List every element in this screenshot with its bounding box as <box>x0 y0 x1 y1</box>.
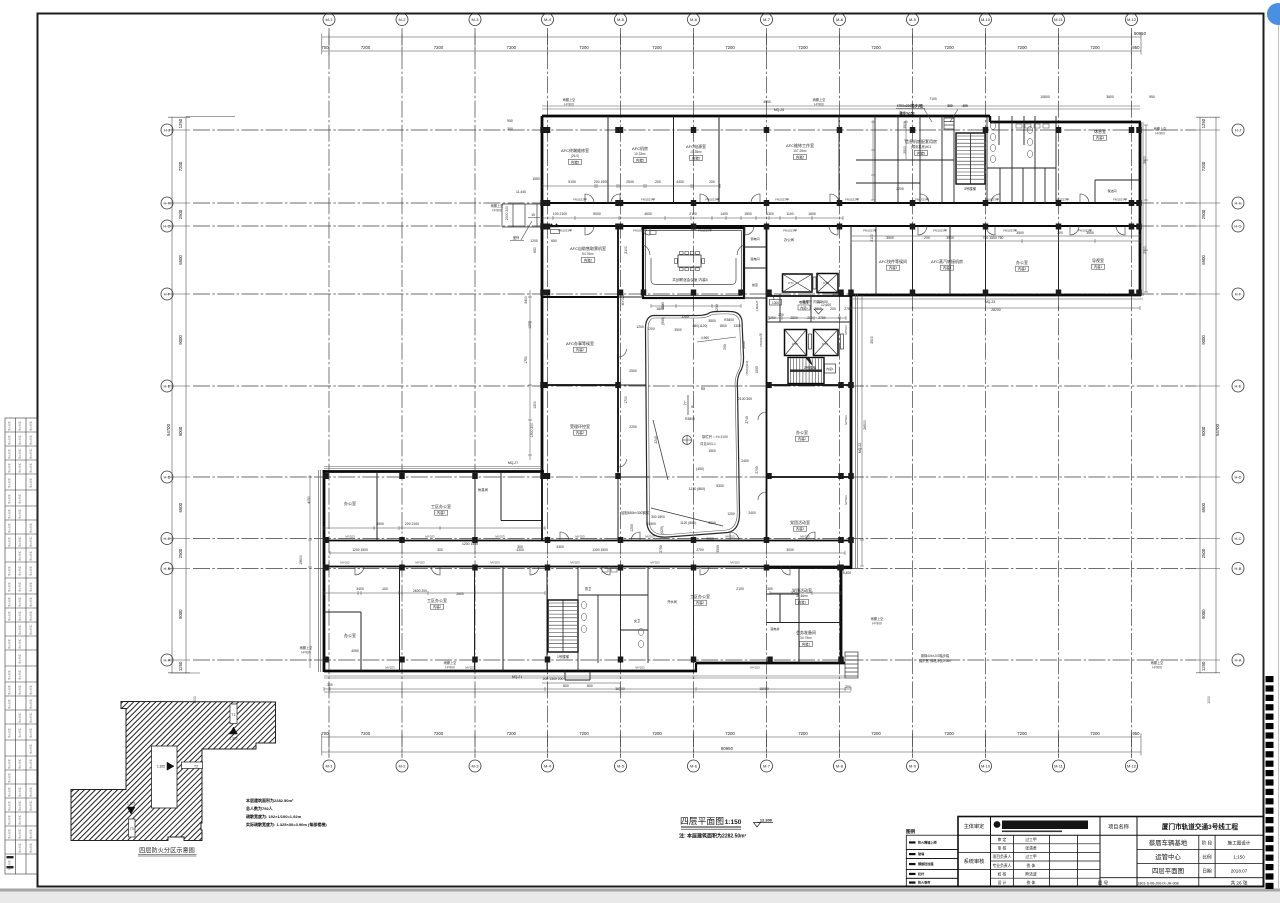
svg-text:防火分区: 防火分区 <box>7 815 11 825</box>
svg-text:54700: 54700 <box>166 423 171 436</box>
svg-text:H-F: H-F <box>1235 292 1242 297</box>
svg-text:内装2: 内装2 <box>584 257 592 262</box>
svg-text:200: 200 <box>709 180 715 184</box>
svg-text:5300: 5300 <box>708 521 716 525</box>
svg-text:FM1023甲: FM1023甲 <box>759 333 763 346</box>
svg-text:MY023: MY023 <box>844 325 848 335</box>
svg-text:防火分区: 防火分区 <box>7 435 11 445</box>
svg-text:MY023: MY023 <box>495 535 505 539</box>
svg-text:750 1500 750: 750 1500 750 <box>983 236 1004 240</box>
svg-text:FM1523甲: FM1523甲 <box>573 198 587 202</box>
svg-text:2100 300: 2100 300 <box>738 397 752 401</box>
svg-text:M-7: M-7 <box>763 764 771 769</box>
svg-text:2600: 2600 <box>456 592 464 596</box>
svg-text:2号楼梯: 2号楼梯 <box>804 365 817 370</box>
svg-text:注: 本层建筑面积为2282.50m²: 注: 本层建筑面积为2282.50m² <box>679 832 747 839</box>
svg-text:M-6: M-6 <box>690 764 698 769</box>
svg-text:1600: 1600 <box>808 212 816 216</box>
svg-text:内装1: 内装1 <box>826 367 834 371</box>
svg-text:四层平面图: 四层平面图 <box>1152 867 1184 875</box>
svg-text:1300 1500: 1300 1500 <box>592 548 608 552</box>
svg-text:H-G: H-G <box>1234 224 1241 229</box>
svg-text:防火分区: 防火分区 <box>29 551 33 561</box>
svg-text:图例: 图例 <box>906 828 916 835</box>
svg-text:200: 200 <box>924 236 930 240</box>
svg-text:2100: 2100 <box>689 212 697 216</box>
svg-text:防火分区: 防火分区 <box>7 597 11 607</box>
svg-text:FM1023甲: FM1023甲 <box>698 229 712 233</box>
svg-text:H=900: H=900 <box>492 209 502 213</box>
svg-text:踏步宽, 梯段净宽5,650: 踏步宽, 梯段净宽5,650 <box>919 658 951 663</box>
svg-text:AFC蒸汽转接机房: AFC蒸汽转接机房 <box>931 258 963 264</box>
svg-text:防火分区: 防火分区 <box>18 611 22 621</box>
svg-text:9000: 9000 <box>178 335 183 345</box>
svg-text:1号楼梯: 1号楼梯 <box>557 654 570 659</box>
svg-text:FM1023甲: FM1023甲 <box>1003 229 1017 233</box>
svg-text:防火分区: 防火分区 <box>7 421 11 431</box>
svg-text:200 1900: 200 1900 <box>594 180 608 184</box>
svg-text:2750: 2750 <box>844 307 852 311</box>
svg-text:2240: 2240 <box>654 436 658 444</box>
svg-text:施工图设计: 施工图设计 <box>1228 840 1251 847</box>
svg-text:100 2100: 100 2100 <box>553 212 567 216</box>
svg-text:2300 200: 2300 200 <box>505 206 509 220</box>
svg-text:FM1023甲: FM1023甲 <box>863 229 877 233</box>
svg-text:4600: 4600 <box>644 212 652 216</box>
svg-text:踏步%150: 踏步%150 <box>899 111 914 116</box>
svg-text:雨棚上空: 雨棚上空 <box>563 97 576 102</box>
svg-text:内装5: 内装5 <box>571 159 579 164</box>
svg-text:2500: 2500 <box>178 209 183 219</box>
svg-text:MY023: MY023 <box>415 561 425 565</box>
svg-text:4700x200踏步(暗): 4700x200踏步(暗) <box>897 103 924 108</box>
svg-text:实际疏散宽度为: 1.325×30=3.90m (每部楼梯): 实际疏散宽度为: 1.325×30=3.90m (每部楼梯) <box>246 821 327 827</box>
svg-text:防火分区: 防火分区 <box>29 463 33 473</box>
svg-text:(950): (950) <box>661 317 665 325</box>
svg-text:雨棚上空: 雨棚上空 <box>813 97 826 102</box>
svg-text:1500: 1500 <box>755 366 759 374</box>
svg-text:26500: 26500 <box>863 420 867 430</box>
svg-text:2500: 2500 <box>178 548 183 558</box>
svg-text:钢梯40b×200踏步踏: 钢梯40b×200踏步踏 <box>921 653 950 658</box>
svg-text:内装2: 内装2 <box>798 436 806 441</box>
svg-text:男卫: 男卫 <box>585 586 592 591</box>
svg-text:强电井: 强电井 <box>770 626 779 631</box>
svg-text:阶 段: 阶 段 <box>1202 840 1213 847</box>
svg-text:(450): (450) <box>696 467 704 471</box>
svg-text:H-J: H-J <box>1235 128 1241 133</box>
svg-text:1200: 1200 <box>630 524 634 532</box>
svg-text:2500: 2500 <box>1201 548 1206 558</box>
svg-text:650: 650 <box>551 239 557 243</box>
svg-text:7200: 7200 <box>434 731 444 736</box>
svg-text:办公室: 办公室 <box>1016 259 1028 265</box>
svg-text:办公室: 办公室 <box>344 500 356 506</box>
svg-text:1400: 1400 <box>720 212 728 216</box>
svg-text:300: 300 <box>507 127 513 131</box>
svg-text:MQ-21: MQ-21 <box>512 675 522 679</box>
svg-text:防火分区: 防火分区 <box>7 728 11 738</box>
svg-text:7200: 7200 <box>361 731 371 736</box>
svg-text:700: 700 <box>321 45 329 50</box>
svg-text:M-3: M-3 <box>472 764 480 769</box>
svg-text:防火分区: 防火分区 <box>29 829 33 839</box>
svg-text:M-7: M-7 <box>763 17 771 22</box>
svg-text:防火分区: 防火分区 <box>7 494 11 504</box>
svg-text:会务准备间: 会务准备间 <box>796 629 816 635</box>
svg-text:AFC办事等候室: AFC办事等候室 <box>566 340 594 346</box>
svg-text:办公室: 办公室 <box>344 632 356 638</box>
svg-text:AFC机房: AFC机房 <box>632 145 648 151</box>
svg-text:FM1523甲: FM1523甲 <box>845 198 859 202</box>
svg-text:1200: 1200 <box>727 512 735 516</box>
svg-text:3500: 3500 <box>870 336 874 344</box>
svg-text:1250: 1250 <box>178 118 183 128</box>
svg-text:7200: 7200 <box>871 45 881 50</box>
svg-text:680(1120): 680(1120) <box>693 324 708 328</box>
svg-text:DT1: DT1 <box>788 281 794 285</box>
svg-text:1550: 1550 <box>532 177 540 181</box>
svg-text:3600: 3600 <box>1106 95 1114 99</box>
svg-text:34.75m²: 34.75m² <box>800 636 812 640</box>
svg-text:7200: 7200 <box>725 45 735 50</box>
svg-text:防火分区: 防火分区 <box>29 843 33 853</box>
svg-text:7200: 7200 <box>506 731 516 736</box>
svg-text:防火分区: 防火分区 <box>7 829 11 839</box>
svg-text:6500: 6500 <box>1201 502 1206 512</box>
svg-text:2500: 2500 <box>742 341 746 349</box>
svg-text:2600 200: 2600 200 <box>413 589 427 593</box>
svg-text:防火分区: 防火分区 <box>18 566 22 576</box>
svg-text:项目负责人: 项目负责人 <box>993 854 1012 859</box>
svg-text:6500: 6500 <box>178 255 183 265</box>
svg-text:MY023: MY023 <box>725 535 735 539</box>
svg-text:防火分区: 防火分区 <box>18 759 22 769</box>
svg-text:80950: 80950 <box>721 746 734 751</box>
svg-text:7200: 7200 <box>798 731 808 736</box>
svg-text:MY023: MY023 <box>340 561 350 565</box>
svg-text:1.325: 1.325 <box>157 765 165 769</box>
svg-text:15,400: 15,400 <box>841 571 851 575</box>
svg-text:工区办公室: 工区办公室 <box>690 593 710 599</box>
svg-text:7200: 7200 <box>579 45 589 50</box>
svg-text:防火分区: 防火分区 <box>7 773 11 783</box>
svg-text:运管中心: 运管中心 <box>1155 852 1181 861</box>
svg-text:(1500)(900): (1500)(900) <box>745 361 749 376</box>
svg-text:1130 (860): 1130 (860) <box>689 487 705 491</box>
svg-text:28200: 28200 <box>991 308 1001 312</box>
svg-text:防火分区: 防火分区 <box>29 478 33 488</box>
svg-text:防火分区: 防火分区 <box>18 625 22 635</box>
svg-text:1300: 1300 <box>766 212 774 216</box>
svg-text:主体审定: 主体审定 <box>964 822 985 830</box>
svg-text:7200: 7200 <box>1090 731 1100 736</box>
svg-text:80950: 80950 <box>1134 31 1147 36</box>
svg-text:内装2: 内装2 <box>433 604 441 609</box>
svg-text:19600: 19600 <box>299 555 303 565</box>
svg-text:AFC终端维修室: AFC终端维修室 <box>561 147 589 153</box>
svg-text:R3500: R3500 <box>646 522 656 526</box>
svg-text:H-E: H-E <box>1235 384 1242 389</box>
svg-text:防火卷帘: 防火卷帘 <box>918 880 930 885</box>
svg-text:2400: 2400 <box>748 511 756 515</box>
svg-text:3500: 3500 <box>708 319 716 323</box>
svg-text:H=900: H=900 <box>564 103 574 107</box>
svg-text:休息间: 休息间 <box>478 487 489 492</box>
svg-text:FM1023甲: FM1023甲 <box>933 229 947 233</box>
svg-text:弱电间: 弱电间 <box>750 236 759 241</box>
svg-text:防火分区: 防火分区 <box>29 699 33 709</box>
svg-text:厦门市轨道交通3号线工程: 厦门市轨道交通3号线工程 <box>1161 822 1239 831</box>
svg-text:AFC维修工作室: AFC维修工作室 <box>786 142 814 148</box>
svg-text:内装3: 内装3 <box>943 265 951 270</box>
svg-text:7200: 7200 <box>506 45 516 50</box>
svg-text:防火分区: 防火分区 <box>29 744 33 754</box>
svg-text:7100: 7100 <box>929 97 937 101</box>
svg-text:防火分区: 防火分区 <box>29 801 33 811</box>
svg-text:DT3: DT3 <box>792 342 798 346</box>
svg-text:3500: 3500 <box>674 328 682 332</box>
svg-text:防火分区: 防火分区 <box>29 787 33 797</box>
svg-text:7200: 7200 <box>1090 45 1100 50</box>
svg-text:H-C: H-C <box>1234 536 1241 541</box>
svg-text:M-2: M-2 <box>399 17 407 22</box>
svg-text:H-B: H-B <box>1235 566 1242 571</box>
svg-text:防火分区: 防火分区 <box>7 639 11 649</box>
svg-text:2100: 2100 <box>870 234 874 242</box>
svg-text:防火分区: 防火分区 <box>7 566 11 576</box>
svg-text:防火分区: 防火分区 <box>18 843 22 853</box>
svg-text:栏杆: 栏杆 <box>918 871 925 876</box>
svg-text:R3800: R3800 <box>685 417 695 421</box>
svg-text:F,M2427: F,M2427 <box>755 300 759 311</box>
svg-text:15: 15 <box>531 213 535 217</box>
svg-text:M-6: M-6 <box>690 17 698 22</box>
svg-text:200: 200 <box>1057 231 1063 235</box>
svg-text:MY023: MY023 <box>635 666 645 670</box>
svg-text:R8: R8 <box>701 387 705 391</box>
svg-text:M-4: M-4 <box>544 17 552 22</box>
svg-text:1000: 1000 <box>1207 696 1211 704</box>
svg-text:9000: 9000 <box>1201 609 1206 619</box>
svg-text:M-8: M-8 <box>836 17 844 22</box>
svg-text:M-5: M-5 <box>617 17 625 22</box>
svg-text:内装1: 内装1 <box>798 599 806 604</box>
svg-text:10.35m²: 10.35m² <box>690 150 702 154</box>
svg-text:内装3: 内装3 <box>1096 135 1104 140</box>
svg-text:54.76m²: 54.76m² <box>582 252 594 256</box>
svg-text:雨棚上空: 雨棚上空 <box>1151 660 1164 665</box>
svg-text:2740: 2740 <box>745 416 749 424</box>
svg-text:防火分区: 防火分区 <box>18 537 22 547</box>
svg-text:FM1523甲: FM1523甲 <box>915 198 929 202</box>
svg-text:650: 650 <box>533 247 537 253</box>
svg-text:M-3: M-3 <box>472 17 480 22</box>
svg-text:H=900: H=900 <box>872 622 882 626</box>
svg-text:防火分区: 防火分区 <box>29 566 33 576</box>
svg-text:2500: 2500 <box>626 180 634 184</box>
svg-text:2500: 2500 <box>629 369 637 373</box>
svg-text:防火分区: 防火分区 <box>7 449 11 459</box>
svg-text:防火分区: 防火分区 <box>7 699 11 709</box>
svg-text:FM1523甲: FM1523甲 <box>775 198 789 202</box>
svg-text:MY023: MY023 <box>650 561 660 565</box>
svg-text:3400: 3400 <box>524 296 528 304</box>
svg-text:审 核: 审 核 <box>998 846 1007 851</box>
svg-text:T3: T3 <box>130 827 134 831</box>
svg-text:M-12: M-12 <box>1127 17 1137 22</box>
svg-text:4050: 4050 <box>307 496 311 504</box>
svg-text:3500: 3500 <box>1016 231 1024 235</box>
svg-text:防火分区: 防火分区 <box>7 523 11 533</box>
svg-text:蔡厝车辆基地: 蔡厝车辆基地 <box>1149 838 1188 847</box>
svg-text:5300: 5300 <box>716 484 724 488</box>
svg-text:内装3: 内装3 <box>889 265 897 270</box>
svg-text:M-4: M-4 <box>544 764 552 769</box>
svg-text:R3800: R3800 <box>724 318 734 322</box>
svg-text:7200: 7200 <box>1017 45 1027 50</box>
svg-text:4050: 4050 <box>351 649 359 653</box>
svg-text:防火分区: 防火分区 <box>18 421 22 431</box>
svg-text:雨棚上空: 雨棚上空 <box>1154 126 1167 131</box>
svg-text:MY023: MY023 <box>465 666 475 670</box>
svg-text:1250: 1250 <box>1201 661 1206 671</box>
svg-text:2200: 2200 <box>896 187 904 191</box>
svg-text:MY023: MY023 <box>490 561 500 565</box>
svg-text:200: 200 <box>723 344 727 350</box>
svg-text:FM1023甲: FM1023甲 <box>1078 229 1092 233</box>
svg-text:张清君: 张清君 <box>1025 846 1037 851</box>
svg-text:950: 950 <box>1149 95 1155 99</box>
svg-text:本层建筑面积为2282.50m²: 本层建筑面积为2282.50m² <box>245 797 294 803</box>
svg-text:700: 700 <box>321 731 329 736</box>
svg-text:佚 体: 佚 体 <box>1027 880 1036 885</box>
svg-text:1200: 1200 <box>715 304 719 312</box>
svg-text:防火分区: 防火分区 <box>7 787 11 797</box>
svg-text:FM1523甲: FM1523甲 <box>705 198 719 202</box>
svg-text:防火分区: 防火分区 <box>29 597 33 607</box>
svg-text:7200: 7200 <box>579 731 589 736</box>
svg-text:MY023: MY023 <box>425 535 435 539</box>
svg-text:玻璃: 玻璃 <box>918 851 924 856</box>
svg-text:7200: 7200 <box>871 731 881 736</box>
svg-text:T2: T2 <box>194 764 198 768</box>
svg-text:强电间: 强电间 <box>750 256 759 261</box>
svg-text:MQ-25: MQ-25 <box>774 108 784 112</box>
svg-text:M-9: M-9 <box>909 764 917 769</box>
svg-text:防火分区: 防火分区 <box>29 625 33 635</box>
svg-text:防火分区: 防火分区 <box>7 759 11 769</box>
svg-text:39.66m²: 39.66m² <box>796 594 808 598</box>
svg-text:防火分区: 防火分区 <box>18 829 22 839</box>
svg-text:M-1: M-1 <box>326 764 334 769</box>
svg-text:MY023: MY023 <box>621 295 625 306</box>
svg-text:MY023: MY023 <box>575 535 585 539</box>
svg-text:雨棚上空: 雨棚上空 <box>300 645 313 650</box>
svg-text:受理环控室: 受理环控室 <box>570 423 590 429</box>
svg-text:2700: 2700 <box>755 466 759 474</box>
svg-text:防火分区: 防火分区 <box>7 611 11 621</box>
svg-text:2500: 2500 <box>903 146 907 154</box>
svg-text:7200: 7200 <box>725 731 735 736</box>
svg-text:T1: T1 <box>232 713 236 717</box>
svg-text:7200: 7200 <box>944 731 954 736</box>
svg-text:9000: 9000 <box>1201 335 1206 345</box>
svg-text:2200: 2200 <box>629 425 637 429</box>
svg-text:MY023: MY023 <box>385 666 395 670</box>
svg-text:2400: 2400 <box>741 459 749 463</box>
svg-text:DT4: DT4 <box>822 342 828 346</box>
svg-text:防火分区: 防火分区 <box>7 537 11 547</box>
svg-text:前室: 前室 <box>752 282 758 287</box>
svg-text:项目名称: 项目名称 <box>1108 823 1129 831</box>
svg-text:内装2: 内装2 <box>576 430 584 435</box>
svg-text:DT2: DT2 <box>823 281 829 285</box>
svg-text:12600: 12600 <box>818 300 828 304</box>
svg-text:4950: 4950 <box>763 100 771 104</box>
svg-text:11,440: 11,440 <box>516 190 526 194</box>
svg-text:防火分区: 防火分区 <box>18 597 22 607</box>
svg-text:防火分区: 防火分区 <box>18 435 22 445</box>
svg-text:MY023: MY023 <box>345 535 355 539</box>
svg-text:300: 300 <box>437 548 443 552</box>
svg-text:系统审核: 系统审核 <box>964 857 985 865</box>
svg-text:信息机房配套用房: 信息机房配套用房 <box>905 138 937 144</box>
svg-text:MY023: MY023 <box>844 495 848 505</box>
svg-text:6500: 6500 <box>1201 255 1206 265</box>
svg-text:防火分区: 防火分区 <box>29 582 33 592</box>
svg-text:1.325: 1.325 <box>230 737 238 741</box>
svg-text:3号楼梯: 3号楼梯 <box>964 186 977 191</box>
svg-text:女卫: 女卫 <box>634 618 641 623</box>
svg-text:200: 200 <box>655 180 661 184</box>
svg-text:100: 100 <box>382 587 388 591</box>
svg-text:防火分区: 防火分区 <box>18 654 22 664</box>
svg-text:7200: 7200 <box>178 161 183 171</box>
svg-text:200 2100: 200 2100 <box>405 522 419 526</box>
svg-text:M-11: M-11 <box>1054 17 1064 22</box>
svg-text:1803-S-06-J00-IX-JH-008: 1803-S-06-J00-IX-JH-008 <box>1137 882 1178 886</box>
svg-text:工区办公室: 工区办公室 <box>427 597 447 603</box>
svg-text:7200: 7200 <box>944 45 954 50</box>
svg-text:AFC电源室: AFC电源室 <box>686 143 706 149</box>
svg-text:300 1800: 300 1800 <box>651 515 665 519</box>
svg-text:800: 800 <box>587 684 593 688</box>
svg-text:共 26 张: 共 26 张 <box>1231 880 1248 887</box>
svg-text:FM1523甲: FM1523甲 <box>1055 198 1069 202</box>
svg-text:7200: 7200 <box>652 45 662 50</box>
svg-text:内装1: 内装1 <box>800 305 808 310</box>
svg-text:1100: 1100 <box>786 212 793 216</box>
svg-text:防火分区: 防火分区 <box>18 494 22 504</box>
svg-text:9000: 9000 <box>178 609 183 619</box>
svg-text:防火分区: 防火分区 <box>7 463 11 473</box>
svg-text:H=900: H=900 <box>301 651 311 655</box>
svg-text:防火分区: 防火分区 <box>29 713 33 723</box>
svg-text:内装2: 内装2 <box>1018 266 1026 271</box>
svg-text:内装1: 内装1 <box>1094 264 1102 269</box>
svg-text:MY023: MY023 <box>730 561 740 565</box>
svg-text:7200: 7200 <box>1201 161 1206 171</box>
svg-text:300: 300 <box>767 587 773 591</box>
svg-text:防火分区: 防火分区 <box>29 611 33 621</box>
svg-text:MY023: MY023 <box>800 535 810 539</box>
svg-text:防火分区: 防火分区 <box>18 801 22 811</box>
svg-text:专业负责人: 专业负责人 <box>993 863 1012 868</box>
svg-text:9: 9 <box>691 405 693 409</box>
svg-text:休息室: 休息室 <box>1094 128 1106 134</box>
svg-text:(26.0): (26.0) <box>571 154 579 158</box>
